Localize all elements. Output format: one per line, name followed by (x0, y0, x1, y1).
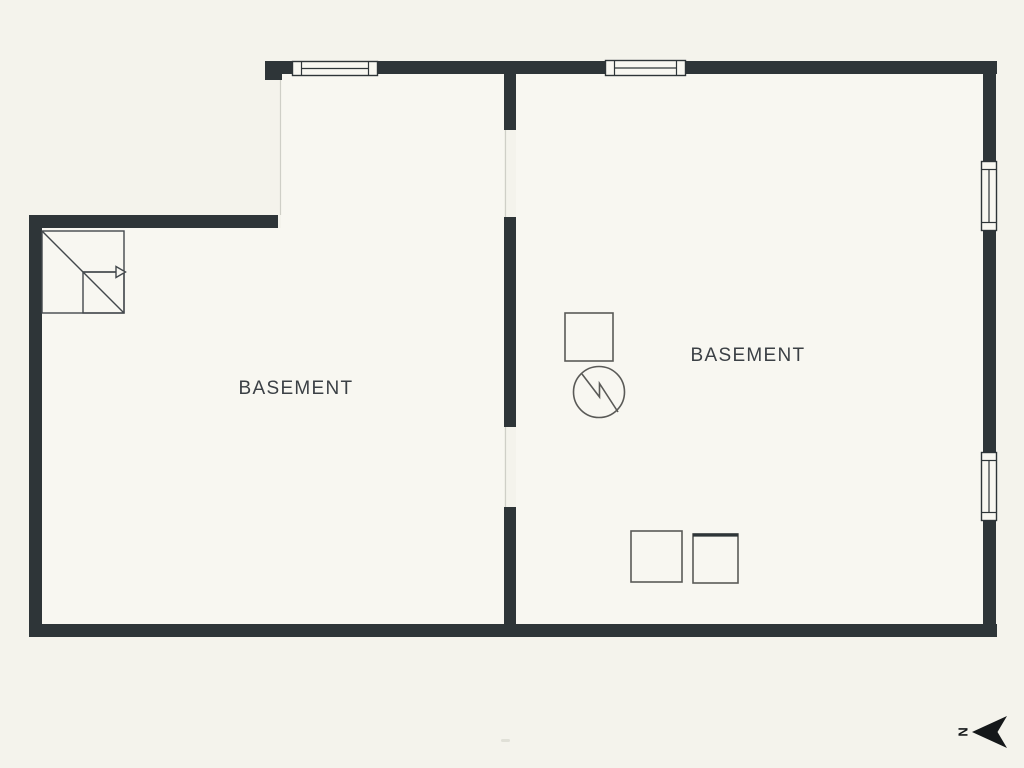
window-icon-top-right (606, 61, 686, 76)
window-icon-right-upper (982, 162, 997, 231)
right-wall-lower (983, 521, 996, 631)
bottom-wall (29, 624, 997, 637)
left-wall (29, 215, 42, 637)
window-icon-right-lower (982, 453, 997, 521)
north-arrow-icon (972, 716, 1007, 748)
floor-plan-drawing (0, 0, 1024, 768)
right-wall-upper (983, 74, 996, 162)
mid-left-wall (29, 215, 278, 228)
center-wall-upper (504, 74, 516, 130)
center-wall-middle (504, 217, 516, 427)
print-smudge (501, 739, 510, 742)
top-wall-left-stub (265, 61, 282, 80)
window-icon-top-left (293, 62, 378, 76)
left-room-floor (42, 74, 504, 624)
right-wall-middle (983, 231, 996, 452)
compass-north-label: N (956, 727, 971, 736)
room-label-basement-right: BASEMENT (691, 345, 806, 367)
floor-plan-page: BASEMENT BASEMENT N (0, 0, 1024, 768)
center-wall-lower (504, 507, 516, 624)
room-label-basement-left: BASEMENT (239, 378, 354, 400)
